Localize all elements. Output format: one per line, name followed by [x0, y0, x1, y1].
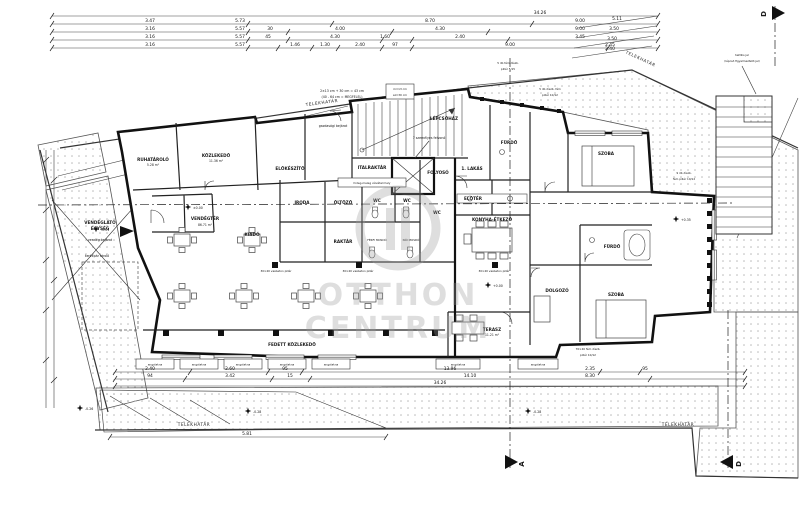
washbasin — [500, 150, 505, 155]
column — [707, 302, 712, 307]
vendeglato-label-1: VENDÉGLÁTÓ — [84, 220, 116, 225]
dim-e1: 3.16 — [145, 42, 155, 48]
dim-d1: 3.16 — [145, 34, 155, 40]
dim-total-bottom: 34.26 — [434, 380, 447, 386]
section-marker-a-label: A — [518, 461, 526, 467]
room-kozlekedo: KÖZLEKEDŐ — [202, 153, 231, 158]
column — [557, 109, 561, 113]
dimension-chains-top-right: 5.11 3.50 3.50 2.40 — [572, 16, 658, 58]
dim-b2: 5.73 — [235, 18, 245, 24]
room-oltozo: ÖLTÖZŐ — [334, 200, 353, 205]
boundary-label-top-right: TELEKHATÁR — [624, 49, 657, 68]
vb-pillar-label-3: 30×40 vasbeton pillér — [478, 269, 510, 273]
elevation-plus-zero: +0.00 — [493, 284, 503, 288]
dimension-chains-top: 34.26 3.47 5.73 8.70 9.00 3.16 5.57 30 4… — [50, 10, 660, 51]
vb-pillar-label-2: 30×40 vasbeton pillér — [342, 269, 374, 273]
dim-e5: 2.40 — [355, 42, 365, 48]
bathtub-basin — [629, 234, 645, 256]
section-marker-a-icon — [505, 455, 518, 469]
column — [707, 289, 712, 294]
toilet — [407, 250, 413, 258]
taktilis-leader — [742, 66, 756, 94]
boundary-label-bottom-right: TELEKHATÁR — [661, 422, 695, 427]
fem70-label-1: 70×40 fém díszb. — [576, 347, 601, 351]
dim-r4: 2.40 — [605, 46, 615, 52]
column — [707, 198, 712, 203]
dim-d6: 2.40 — [455, 34, 465, 40]
column — [356, 262, 362, 268]
angolakna-label: angolakna — [451, 363, 466, 367]
dim-bot2-2: 3.42 — [225, 373, 235, 379]
boundary-label-bottom-left: TELEKHATÁR — [177, 422, 211, 427]
fem5b-label-1: 5 db díszb. fém — [539, 87, 561, 91]
dim-bot2-1: 94 — [147, 373, 153, 379]
room-iroda: IRODA — [294, 200, 310, 205]
room-vendegter-area: 86.71 m² — [198, 223, 213, 227]
elevation-minus-028-a: -0.28 — [253, 410, 261, 414]
chair — [464, 234, 471, 244]
elevation-star — [77, 405, 83, 411]
angolakna-label: angolakna — [236, 363, 251, 367]
floor-plan-drawing: TELEKHATÁR TELEKHATÁR TELEKHATÁR TELEKHA… — [0, 0, 800, 532]
room-italraktar: ITALRAKTÁR — [358, 165, 387, 170]
dim-bot1-2: 2.60 — [225, 366, 235, 372]
room-ferfi-mosdo: FÉRFI MOSDÓ — [367, 237, 387, 242]
section-marker-d-top-label: D — [760, 11, 768, 17]
kerekpar-tarolo-label: kerékpár tároló — [85, 254, 109, 258]
dim-c4: 4.00 — [335, 26, 345, 32]
boundary-label-top-left: TELEKHATÁR — [304, 98, 338, 107]
room-elokeszito: ELŐKÉSZÍTŐ — [275, 166, 305, 171]
column — [707, 237, 712, 242]
dim-total-top: 34.26 — [534, 10, 547, 16]
room-ruhatarolo-area: 5.28 m² — [147, 163, 160, 167]
dim-d5: 1.60 — [380, 34, 390, 40]
room-dolgozo: DOLGOZÓ — [545, 288, 569, 293]
dim-r3: 3.50 — [607, 36, 617, 42]
dim-c2: 5.57 — [235, 26, 245, 32]
dim-e7: 9.00 — [505, 42, 515, 48]
vb-pillar-label-1: 30×40 vasbeton pillér — [260, 269, 292, 273]
dim-bot1-5: 2.35 — [585, 366, 595, 372]
dim-b4: 9.00 — [575, 18, 585, 24]
chair — [500, 253, 508, 259]
riser-label-2: sz=30 cm — [393, 93, 407, 97]
taktilis-label-1: taktilis jel — [735, 53, 749, 57]
angolakna-label: angolakna — [280, 363, 295, 367]
dim-bot1-4: 13.96 — [444, 366, 457, 372]
room-szoba-2: SZOBA — [608, 292, 625, 297]
dim-wedge: 5.81 — [242, 431, 252, 437]
room-kozlekedo-area: 11.36 m² — [209, 159, 224, 163]
fem9-label-1: 9 db díszb. — [676, 171, 691, 175]
watermark-text-2: CENTRUM — [305, 311, 491, 346]
room-vendegter: VENDÉGTÉR — [191, 216, 220, 221]
boundary-bottom — [95, 428, 798, 478]
column — [707, 263, 712, 268]
column — [707, 224, 712, 229]
room-furdo-1: FÜRDŐ — [501, 140, 518, 145]
angolakna-row: angolakna angolakna angolakna angolakna … — [136, 359, 558, 369]
stair-landing — [744, 96, 772, 122]
column — [520, 103, 524, 107]
column — [707, 211, 712, 216]
washbasin — [590, 238, 595, 243]
desk — [534, 296, 550, 322]
vizvetel-label: hideg-meleg vízvételi hely — [354, 181, 391, 185]
section-marker-d-label: D — [735, 461, 743, 467]
dim-b1: 3.47 — [145, 18, 155, 24]
room-konyha-etkezo: KONYHA-ÉTKEZŐ — [472, 217, 512, 222]
dim-d3: 45 — [265, 34, 271, 40]
column — [273, 330, 279, 336]
stair-calc-2: (40 - 64 cm = MEGFELEL) — [322, 95, 363, 99]
column — [480, 97, 484, 101]
watermark-logo-bar — [401, 208, 410, 250]
room-folyoso: FOLYOSÓ — [427, 170, 449, 175]
dim-bot1-6: 95 — [642, 366, 648, 372]
angolakna-label: angolakna — [531, 363, 546, 367]
room-szoba-1: SZOBA — [598, 151, 615, 156]
room-lakas1: 1. LAKÁS — [461, 166, 482, 171]
dim-bot1-3: 95 — [282, 366, 288, 372]
felvono-label: 7 személyes felvonó — [413, 136, 446, 140]
chair — [488, 253, 496, 259]
toilet — [372, 210, 378, 218]
elevation-plus-035: +0.35 — [681, 218, 691, 222]
dim-bot2-3: 15 — [287, 373, 293, 379]
watermark-text-1: OTTHON — [318, 278, 479, 313]
dim-c3: 30 — [267, 26, 273, 32]
dim-bot2-4: 14.10 — [464, 373, 477, 379]
chair — [476, 253, 484, 259]
room-eloter: ELŐTÉR — [464, 196, 483, 201]
column — [492, 262, 498, 268]
column — [707, 250, 712, 255]
bed — [596, 300, 646, 338]
floor-plan-canvas: TELEKHATÁR TELEKHATÁR TELEKHATÁR TELEKHA… — [0, 0, 800, 532]
column — [272, 262, 278, 268]
room-furdo-2: FÜRDŐ — [604, 244, 621, 249]
stair-calc-1: 2×13 cm + 30 cm = 43 cm — [320, 89, 364, 93]
fem70-label-2: pillér 10/12 — [580, 353, 596, 357]
column — [163, 330, 169, 336]
dim-bot2-5: 8.30 — [585, 373, 595, 379]
room-wc-2: WC — [403, 198, 411, 203]
dim-r2: 3.50 — [609, 26, 619, 32]
dim-e6: 97 — [392, 42, 398, 48]
entrance-arrow-icon — [120, 226, 134, 237]
dim-e2: 5.57 — [235, 42, 245, 48]
column — [707, 276, 712, 281]
watermark-logo-bar — [386, 208, 395, 250]
angolakna-label: angolakna — [148, 363, 163, 367]
vendeg-bejarat-label: vendég bejárat — [88, 238, 113, 242]
fem5b-label-2: pillér 10/12 — [542, 93, 558, 97]
dim-r1: 5.11 — [612, 16, 622, 22]
elevation-minus-028-b: -0.28 — [533, 410, 541, 414]
elevation-zero: ±0.00 — [193, 206, 203, 210]
room-ruhatarolo: RUHATÁROLÓ — [137, 157, 169, 162]
column — [540, 106, 544, 110]
dim-e4: 1.30 — [320, 42, 330, 48]
dining-table — [472, 228, 512, 252]
fem9-label-2: fém pillér 10/12 — [673, 177, 695, 181]
section-marker-d-top-icon — [772, 6, 785, 20]
outdoor-stairs — [716, 66, 772, 234]
angolakna-label: angolakna — [192, 363, 207, 367]
dim-b3: 8.70 — [425, 18, 435, 24]
dim-d2: 5.57 — [235, 34, 245, 40]
dim-d4: 4.30 — [330, 34, 340, 40]
dim-c1: 3.16 — [145, 26, 155, 32]
column — [500, 100, 504, 104]
riser-label-1: m=13 cm — [393, 87, 407, 91]
fem5a-label-2: pillér 5/15 — [501, 67, 515, 71]
elevation-minus-026: -0.26 — [85, 407, 93, 411]
gazdasagi-bejarat-label: gazdasági bejárat — [319, 124, 348, 128]
dim-c5: 4.30 — [435, 26, 445, 32]
room-kiado: KIADÓ — [244, 232, 260, 237]
room-raktar: RAKTÁR — [334, 239, 353, 244]
dim-e3: 1.46 — [290, 42, 300, 48]
angolakna-label: angolakna — [324, 363, 339, 367]
room-lepcsohaz: LÉPCSŐHÁZ — [430, 116, 458, 121]
terrain-left-parcel-1 — [38, 133, 106, 186]
elevation-minus-001: -0.01 — [101, 228, 109, 232]
fem5a-label-1: 5 db fém díszb. — [497, 61, 519, 65]
column — [218, 330, 224, 336]
taktilis-label-2: (lépcső figyelmeztető jel) — [724, 59, 759, 63]
dim-bot1-1: 2.40 — [145, 366, 155, 372]
